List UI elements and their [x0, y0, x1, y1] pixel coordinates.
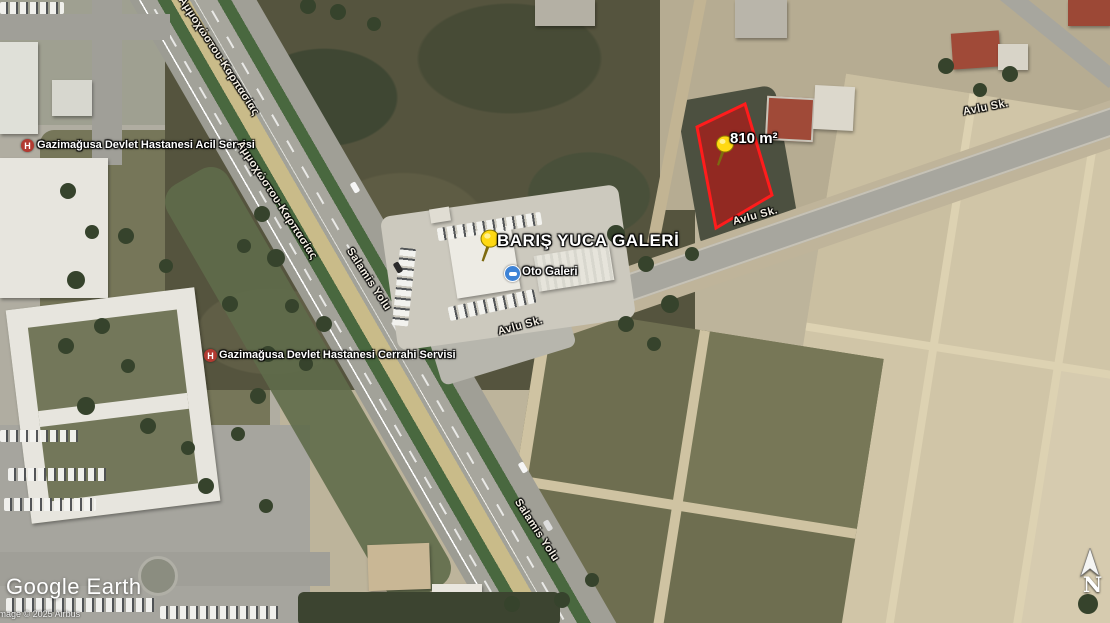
building-hospital-courtyard [6, 287, 221, 524]
parked-cars-row [4, 498, 96, 511]
building-red-roof [1068, 0, 1110, 26]
parked-cars-row [0, 430, 80, 442]
building [998, 44, 1028, 70]
roundabout [138, 556, 178, 596]
label-oto-galeri[interactable]: Oto Galeri [522, 266, 578, 278]
building-wing [38, 393, 189, 427]
building [735, 0, 787, 38]
building [535, 0, 595, 26]
building [0, 42, 38, 134]
north-label: N [1083, 572, 1102, 597]
building [52, 80, 92, 116]
parked-cars-row [8, 468, 108, 481]
imagery-copyright: Image © 2025 Airbus [0, 609, 80, 619]
car-dealer-icon[interactable] [504, 265, 521, 282]
building [367, 543, 431, 591]
google-earth-logo: Google Earth [6, 574, 142, 600]
label-hospital-acil[interactable]: Gazimağusa Devlet Hastanesi Acil Servisi [37, 139, 255, 151]
car-glyph [509, 272, 517, 276]
hedge-row [298, 592, 560, 623]
road-top-left [0, 14, 170, 40]
building-red-roof [951, 30, 1001, 69]
hospital-icon[interactable]: H [204, 349, 217, 362]
building [813, 85, 855, 131]
label-galeri[interactable]: BARIŞ YUCA GALERİ [497, 231, 679, 251]
satellite-map-canvas[interactable]: H H Gazimağusa Devlet Hastanesi Acil Ser… [0, 0, 1110, 623]
label-hospital-cerrahi[interactable]: Gazimağusa Devlet Hastanesi Cerrahi Serv… [219, 349, 456, 361]
label-parcel-area: 810 m² [730, 130, 778, 147]
hospital-icon[interactable]: H [21, 139, 34, 152]
parked-cars-row [0, 2, 64, 14]
building-hospital-main [0, 158, 108, 298]
parked-cars-row [160, 606, 280, 619]
